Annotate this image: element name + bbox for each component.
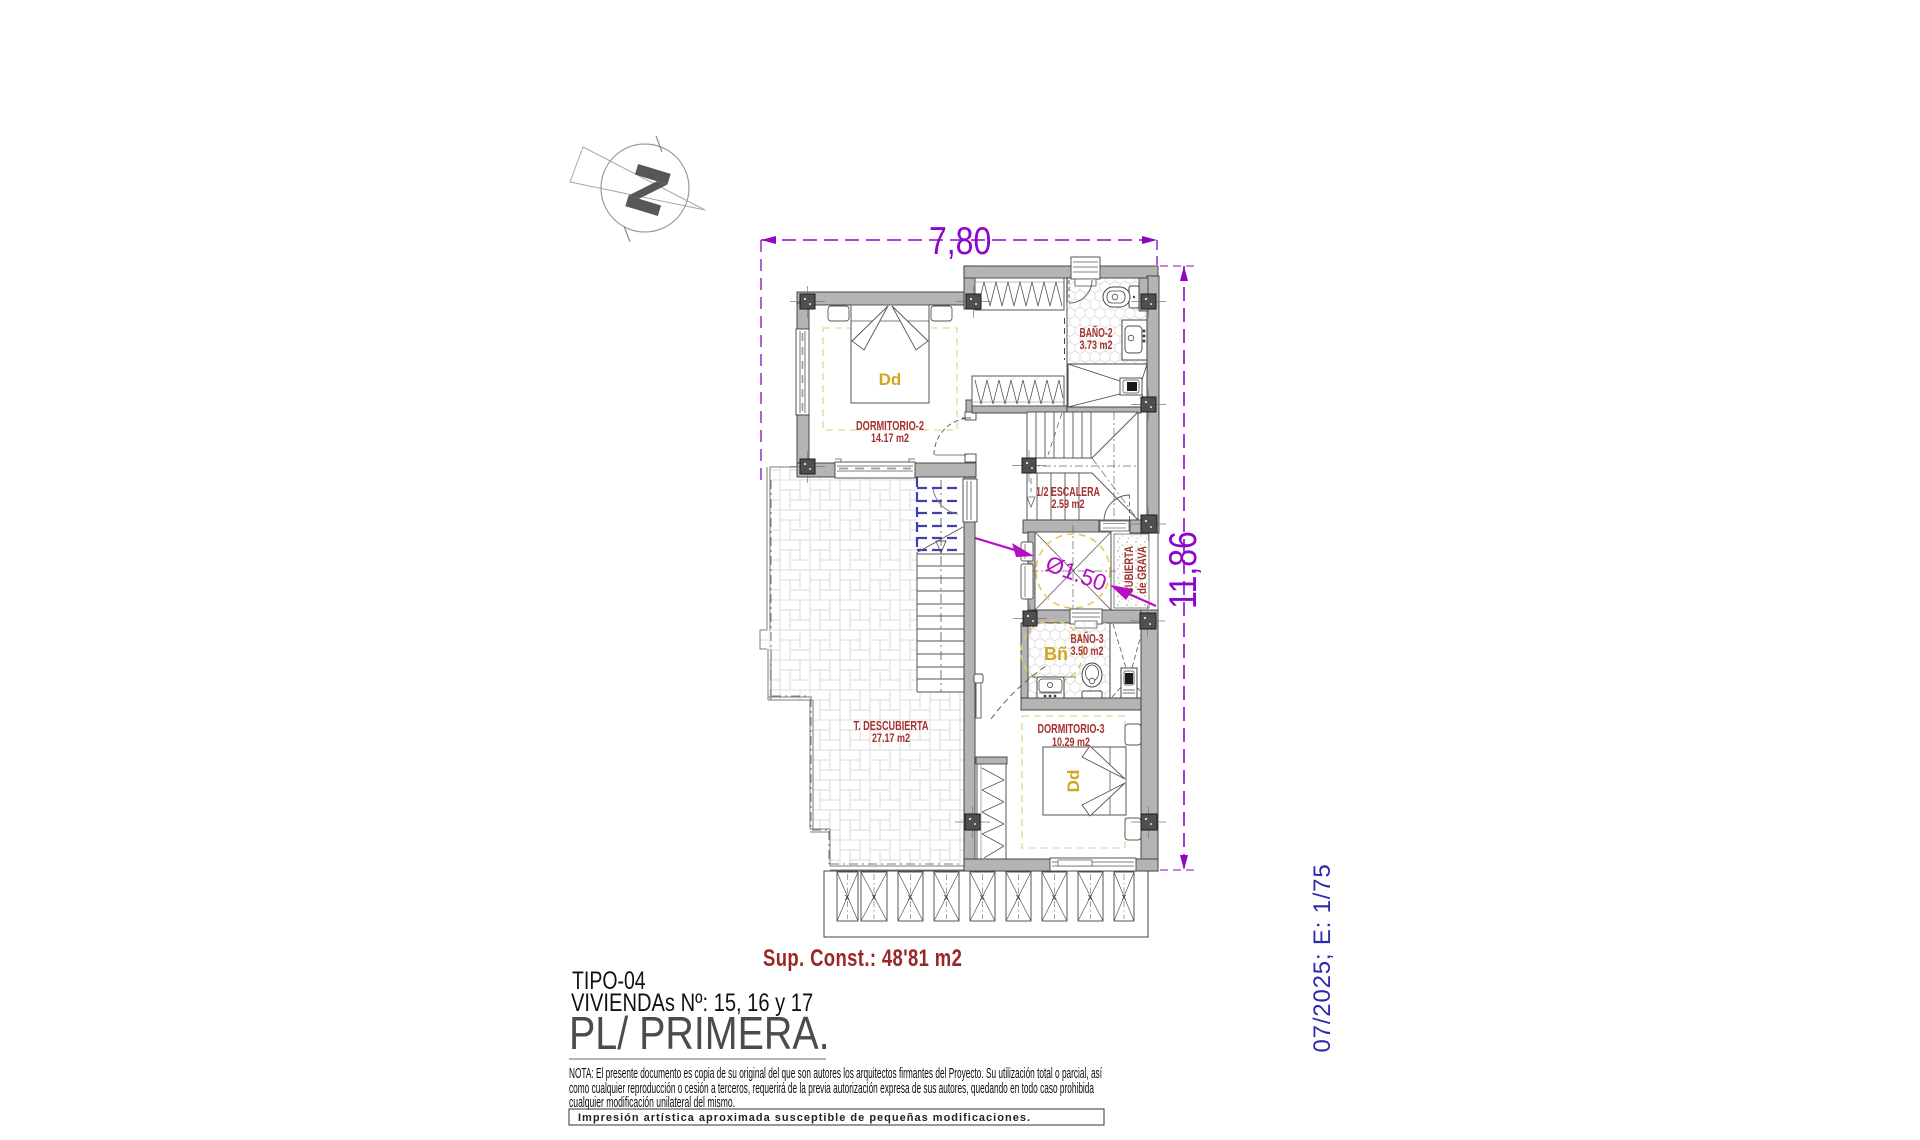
svg-text:14.17 m2: 14.17 m2	[871, 431, 909, 445]
svg-text:x: x	[944, 892, 949, 902]
svg-text:x: x	[845, 892, 850, 902]
svg-text:x: x	[1052, 892, 1057, 902]
svg-text:11,86: 11,86	[1161, 531, 1205, 609]
svg-text:x: x	[1122, 892, 1127, 902]
svg-text:x: x	[872, 892, 877, 902]
svg-text:x: x	[1016, 892, 1021, 902]
svg-text:NOTA: El presente documento es: NOTA: El presente documento es copia de …	[569, 1066, 1102, 1082]
svg-text:CUBIERTA: CUBIERTA	[1122, 546, 1136, 594]
svg-text:Dd: Dd	[879, 370, 902, 389]
svg-text:x: x	[1088, 892, 1093, 902]
svg-text:7,80: 7,80	[929, 219, 991, 263]
svg-text:07/2025; E: 1/75: 07/2025; E: 1/75	[1309, 864, 1336, 1053]
svg-text:x: x	[908, 892, 913, 902]
svg-text:3.50 m2: 3.50 m2	[1071, 644, 1104, 658]
svg-text:2.59 m2: 2.59 m2	[1052, 497, 1085, 511]
svg-text:PL/ PRIMERA.: PL/ PRIMERA.	[569, 1008, 830, 1060]
svg-text:de GRAVA: de GRAVA	[1135, 546, 1149, 594]
svg-text:Dd: Dd	[1064, 770, 1083, 793]
svg-text:Impresión artística aproximada: Impresión artística aproximada susceptib…	[578, 1112, 1030, 1124]
svg-text:DORMITORIO-3: DORMITORIO-3	[1038, 721, 1105, 736]
svg-text:27.17 m2: 27.17 m2	[872, 731, 910, 745]
svg-text:Sup. Const.: 48'81 m2: Sup. Const.: 48'81 m2	[763, 945, 962, 972]
svg-text:Bñ: Bñ	[1044, 644, 1068, 664]
svg-text:3.73 m2: 3.73 m2	[1080, 338, 1113, 352]
svg-text:x: x	[980, 892, 985, 902]
